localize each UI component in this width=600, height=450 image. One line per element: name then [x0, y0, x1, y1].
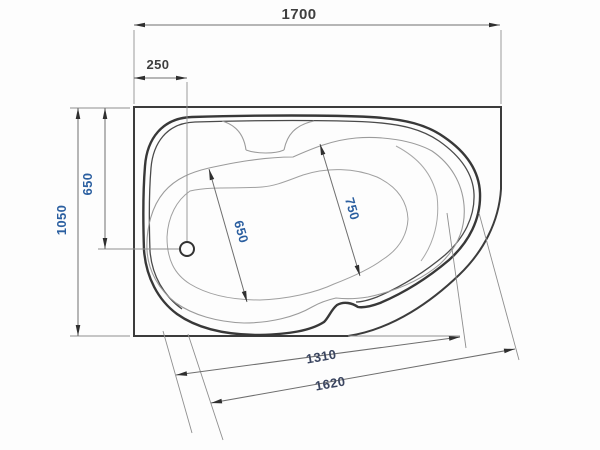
bathtub-technical-drawing: 1700250105065065075013101620: [0, 0, 600, 450]
dimension-arrow: [504, 349, 515, 354]
dimension-650-left-label: 650: [80, 173, 95, 196]
armrest-arc-left: [222, 121, 246, 150]
dimension-line: [211, 349, 515, 403]
dimension-arrow: [211, 399, 222, 404]
extension-line: [188, 334, 223, 440]
dimension-arrow: [103, 238, 108, 249]
dimension-1700: 1700: [134, 6, 500, 27]
dimension-arrow: [489, 23, 500, 28]
dimension-750-label: 750: [342, 196, 363, 222]
dimension-arrow: [103, 108, 108, 119]
dimension-lines: 1700250105065065075013101620: [54, 6, 515, 403]
dimension-arrow: [76, 325, 81, 336]
armrest-notch: [246, 150, 284, 153]
extension-lines: [70, 30, 519, 440]
dimension-1700-label: 1700: [282, 6, 317, 23]
dimension-250: 250: [134, 57, 187, 80]
headrest-contour: [396, 146, 438, 261]
dimension-1310: 1310: [176, 336, 460, 376]
dimension-1620: 1620: [211, 349, 515, 404]
dimension-arrow: [134, 76, 145, 81]
dimension-arrow: [209, 169, 214, 180]
basin-contour: [147, 138, 464, 323]
dimension-650-basin: 650: [209, 169, 252, 302]
dimension-1620-label: 1620: [314, 374, 347, 394]
dimension-650-basin-label: 650: [231, 219, 252, 245]
dimension-arrow: [176, 76, 187, 81]
dimension-1050-label: 1050: [54, 205, 69, 236]
armrest-arc-right: [284, 121, 314, 150]
dimension-arrow: [242, 291, 247, 302]
dimension-arrow: [76, 108, 81, 119]
basin-floor-contour: [167, 170, 408, 300]
extension-line: [479, 213, 519, 360]
dimension-1050: 1050: [54, 108, 80, 336]
drain-circle: [180, 242, 194, 256]
dimension-750: 750: [320, 144, 363, 276]
drawing-canvas: 1700250105065065075013101620: [0, 0, 600, 450]
dimension-650-left: 650: [80, 108, 107, 249]
dimension-250-label: 250: [147, 57, 170, 72]
tub-rim-outer: [143, 116, 480, 336]
dimension-1310-label: 1310: [305, 347, 338, 367]
extension-line: [163, 331, 192, 433]
dimension-arrow: [134, 23, 145, 28]
frame-outline: [134, 107, 501, 336]
